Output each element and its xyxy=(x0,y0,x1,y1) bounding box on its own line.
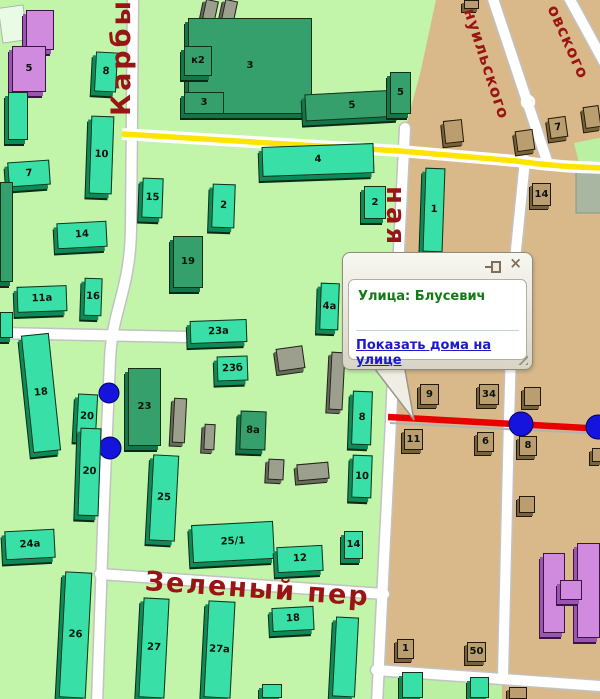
popup-content: Улица: Блусевич Показать дома на улице xyxy=(348,279,527,360)
close-icon[interactable]: × xyxy=(509,256,522,271)
map-view[interactable]: 581073к2355412152141911a164a23a23б8a8102… xyxy=(0,0,600,699)
street-name-label: Зеленый пер xyxy=(144,566,371,613)
show-houses-link[interactable]: Показать дома на улице xyxy=(356,338,526,368)
street-name-label: нуильского xyxy=(460,6,514,121)
popup-divider xyxy=(356,330,519,331)
pin-icon[interactable] xyxy=(485,261,502,273)
popup-title: Улица: Блусевич xyxy=(358,289,485,304)
street-name-label: овского xyxy=(544,2,593,82)
info-popup[interactable]: × Улица: Блусевич Показать дома на улице xyxy=(342,252,533,370)
street-name-label: ная xyxy=(380,186,410,247)
street-name-label: Карбыш xyxy=(106,0,137,116)
